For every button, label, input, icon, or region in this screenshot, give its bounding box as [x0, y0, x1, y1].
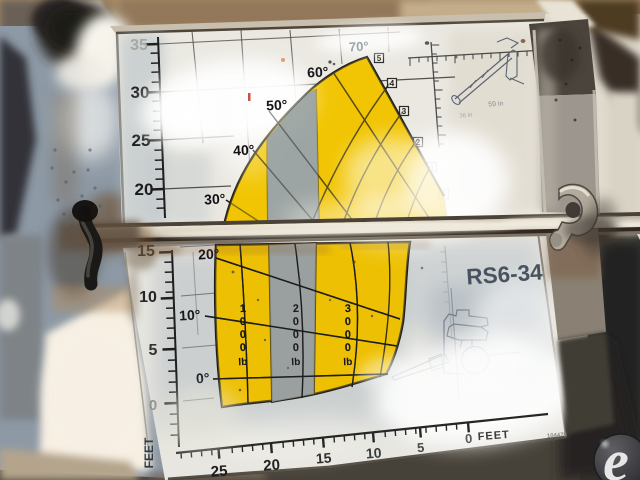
svg-text:50°: 50° — [266, 96, 288, 113]
svg-text:20: 20 — [263, 456, 281, 474]
svg-text:lb: lb — [291, 357, 300, 368]
svg-text:FEET: FEET — [477, 429, 510, 443]
svg-text:e: e — [603, 428, 629, 480]
svg-text:20: 20 — [135, 180, 154, 199]
svg-text:0: 0 — [344, 342, 351, 354]
svg-text:59 in: 59 in — [488, 100, 504, 108]
svg-text:30: 30 — [131, 83, 150, 102]
svg-text:0°: 0° — [196, 370, 210, 387]
svg-text:0: 0 — [344, 316, 351, 328]
svg-text:4: 4 — [390, 79, 395, 88]
svg-text:25: 25 — [210, 462, 228, 480]
svg-text:5: 5 — [149, 342, 158, 359]
svg-text:3: 3 — [344, 303, 351, 315]
svg-text:RS6-34: RS6-34 — [466, 259, 544, 289]
svg-text:FEET: FEET — [142, 437, 156, 468]
svg-text:lb: lb — [238, 357, 247, 368]
svg-text:5: 5 — [417, 440, 425, 455]
svg-text:25: 25 — [132, 131, 151, 150]
svg-text:0: 0 — [344, 329, 351, 341]
svg-text:2: 2 — [292, 303, 299, 315]
svg-text:60°: 60° — [307, 63, 329, 80]
svg-text:lb: lb — [343, 357, 352, 368]
svg-text:30°: 30° — [204, 190, 226, 207]
svg-text:15: 15 — [315, 449, 332, 466]
svg-text:5: 5 — [377, 54, 382, 63]
svg-text:0: 0 — [239, 329, 246, 341]
svg-text:0: 0 — [465, 431, 473, 446]
svg-text:0: 0 — [239, 342, 246, 354]
svg-text:1: 1 — [239, 303, 246, 315]
svg-text:36 in: 36 in — [459, 113, 472, 120]
svg-text:70°: 70° — [349, 39, 369, 55]
svg-text:0: 0 — [149, 397, 157, 414]
svg-text:35: 35 — [130, 37, 148, 54]
svg-text:10: 10 — [365, 444, 382, 461]
svg-text:10°: 10° — [179, 306, 201, 323]
svg-text:0: 0 — [292, 316, 299, 328]
svg-text:10: 10 — [139, 289, 157, 306]
svg-text:40°: 40° — [233, 141, 255, 158]
svg-text:0: 0 — [292, 329, 299, 341]
svg-text:0: 0 — [292, 342, 299, 354]
svg-text:0: 0 — [239, 316, 246, 328]
